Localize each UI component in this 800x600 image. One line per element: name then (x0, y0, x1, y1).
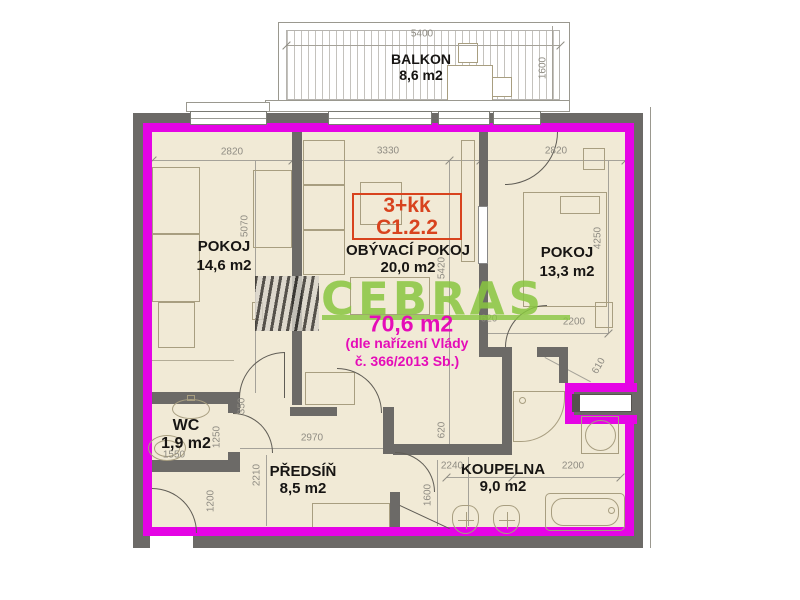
room-label-obyvaci-pokoj: OBÝVACÍ POKOJ 20,0 m2 (346, 242, 470, 276)
dimension-line (286, 45, 560, 46)
dim-koupelna-door: 620 (437, 422, 448, 439)
room-name: BALKON (391, 51, 451, 67)
dim-wc-width: 1550 (163, 450, 185, 461)
regulation-note-line2: č. 366/2013 Sb.) (355, 353, 459, 369)
dim-pokoj-left-width: 2820 (221, 147, 243, 158)
dim-predsin-width: 2970 (301, 433, 323, 444)
room-area: 8,5 m2 (270, 480, 337, 497)
sink (493, 505, 520, 534)
room-label-wc: WC 1,9 m2 (161, 417, 211, 453)
sliding-door-leaf (478, 206, 488, 264)
outer-wall-left (133, 113, 143, 548)
floor-plan: 5400 1600 BALKON 8,6 m2 (0, 0, 800, 600)
room-label-predsin: PŘEDSÍŇ 8,5 m2 (270, 463, 337, 497)
dim-koupelna-height: 1600 (423, 484, 434, 506)
shower-drain (519, 397, 526, 404)
room-area: 14,6 m2 (196, 256, 251, 275)
dim-koupelna-left-width: 2240 (441, 461, 463, 472)
entry-door-hinge (572, 394, 580, 412)
dim-koupelna-right-width: 2200 (562, 461, 584, 472)
dim-wc-door: 350 (237, 398, 248, 415)
room-area: 8,6 m2 (391, 67, 451, 83)
door-leaf (284, 352, 285, 398)
entrance-opening (150, 536, 193, 548)
dim-balcony-width: 5400 (411, 29, 433, 40)
room-label-balkon: BALKON 8,6 m2 (391, 51, 451, 83)
room-name: KOUPELNA (461, 461, 545, 478)
room-name: POKOJ (196, 237, 251, 256)
dim-pokoj-right-width: 2820 (545, 146, 567, 157)
building-contour-line (650, 107, 651, 548)
room-label-pokoj-left: POKOJ 14,6 m2 (196, 237, 251, 275)
dim-wc-height: 1250 (212, 426, 223, 448)
balcony-table (447, 65, 493, 103)
dim-predsin-height: 2210 (252, 464, 263, 486)
outer-wall-right (634, 113, 643, 548)
room-name: WC (161, 417, 211, 435)
outer-wall-bottom (133, 536, 643, 548)
total-area-text: 70,6 m2 (369, 311, 453, 338)
wc-sink (172, 399, 210, 419)
unit-highlight-niche-top (565, 383, 637, 392)
unit-layout: 3+kk (383, 195, 430, 217)
brand-zebra-icon (255, 276, 319, 331)
dimension-line (552, 26, 553, 102)
room-label-koupelna: KOUPELNA 9,0 m2 (461, 461, 545, 495)
entry-door-leaf (578, 394, 632, 412)
sink (452, 505, 479, 534)
unit-badge: 3+kk C1.2.2 (352, 193, 462, 240)
room-name: OBÝVACÍ POKOJ (346, 242, 470, 259)
dim-hall-door-left: 1200 (206, 490, 217, 512)
wc-sink-tap (187, 395, 195, 401)
balcony-door-window (328, 111, 432, 125)
window (493, 111, 541, 125)
room-name: POKOJ (539, 243, 594, 262)
dim-balcony-depth: 1600 (538, 57, 549, 79)
room-label-pokoj-right: POKOJ 13,3 m2 (539, 243, 594, 281)
window (438, 111, 490, 125)
dim-pokoj-right-height: 4250 (593, 227, 604, 249)
dim-pokoj-left-height: 5070 (240, 215, 251, 237)
window (190, 111, 267, 125)
balcony-chair (458, 43, 478, 63)
room-area: 13,3 m2 (539, 262, 594, 281)
bathtub-drain (608, 507, 615, 514)
washing-machine-drum (585, 420, 616, 451)
dim-obyvaci-width: 3330 (377, 146, 399, 157)
room-name: PŘEDSÍŇ (270, 463, 337, 480)
regulation-note-line1: (dle nařízení Vlády (346, 335, 469, 351)
room-area: 9,0 m2 (461, 478, 545, 495)
unit-code: C1.2.2 (376, 217, 438, 239)
balcony-chair (492, 77, 512, 97)
